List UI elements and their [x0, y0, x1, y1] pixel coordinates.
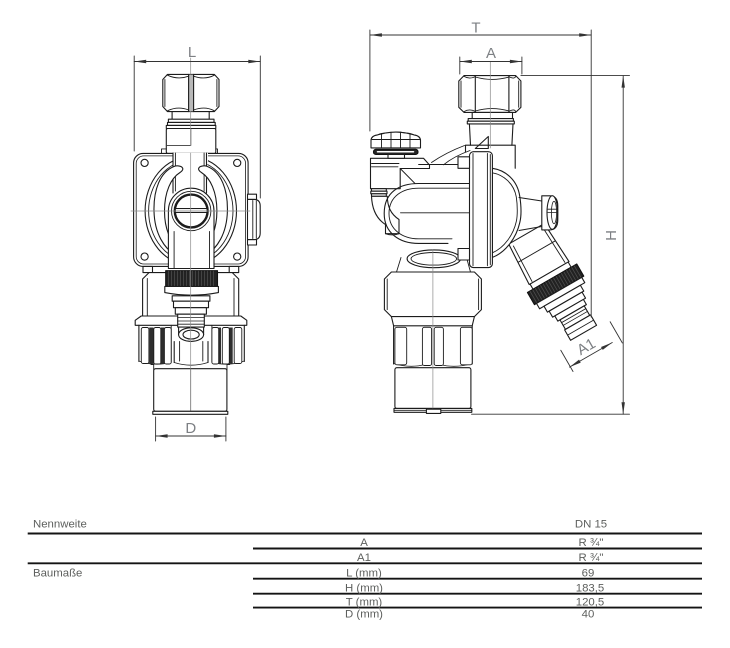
svg-text:H (mm): H (mm)	[345, 583, 383, 595]
svg-text:R ¾": R ¾"	[579, 537, 604, 549]
svg-text:A: A	[486, 45, 496, 62]
svg-text:120,5: 120,5	[576, 597, 605, 609]
svg-text:Nennweite: Nennweite	[33, 518, 87, 530]
svg-text:A: A	[360, 537, 368, 549]
svg-text:T: T	[471, 20, 480, 37]
svg-text:69: 69	[582, 568, 595, 580]
svg-text:L (mm): L (mm)	[346, 568, 382, 580]
svg-text:D (mm): D (mm)	[345, 609, 383, 621]
svg-text:D: D	[185, 420, 196, 437]
svg-text:DN 15: DN 15	[575, 518, 607, 530]
svg-text:H: H	[603, 230, 620, 241]
svg-text:R ¾": R ¾"	[579, 552, 604, 564]
svg-text:A1: A1	[357, 552, 371, 564]
svg-text:183,5: 183,5	[576, 583, 605, 595]
svg-text:L: L	[188, 44, 196, 61]
svg-text:T (mm): T (mm)	[346, 597, 383, 609]
svg-text:Baumaße: Baumaße	[33, 568, 82, 580]
svg-text:40: 40	[582, 609, 595, 621]
